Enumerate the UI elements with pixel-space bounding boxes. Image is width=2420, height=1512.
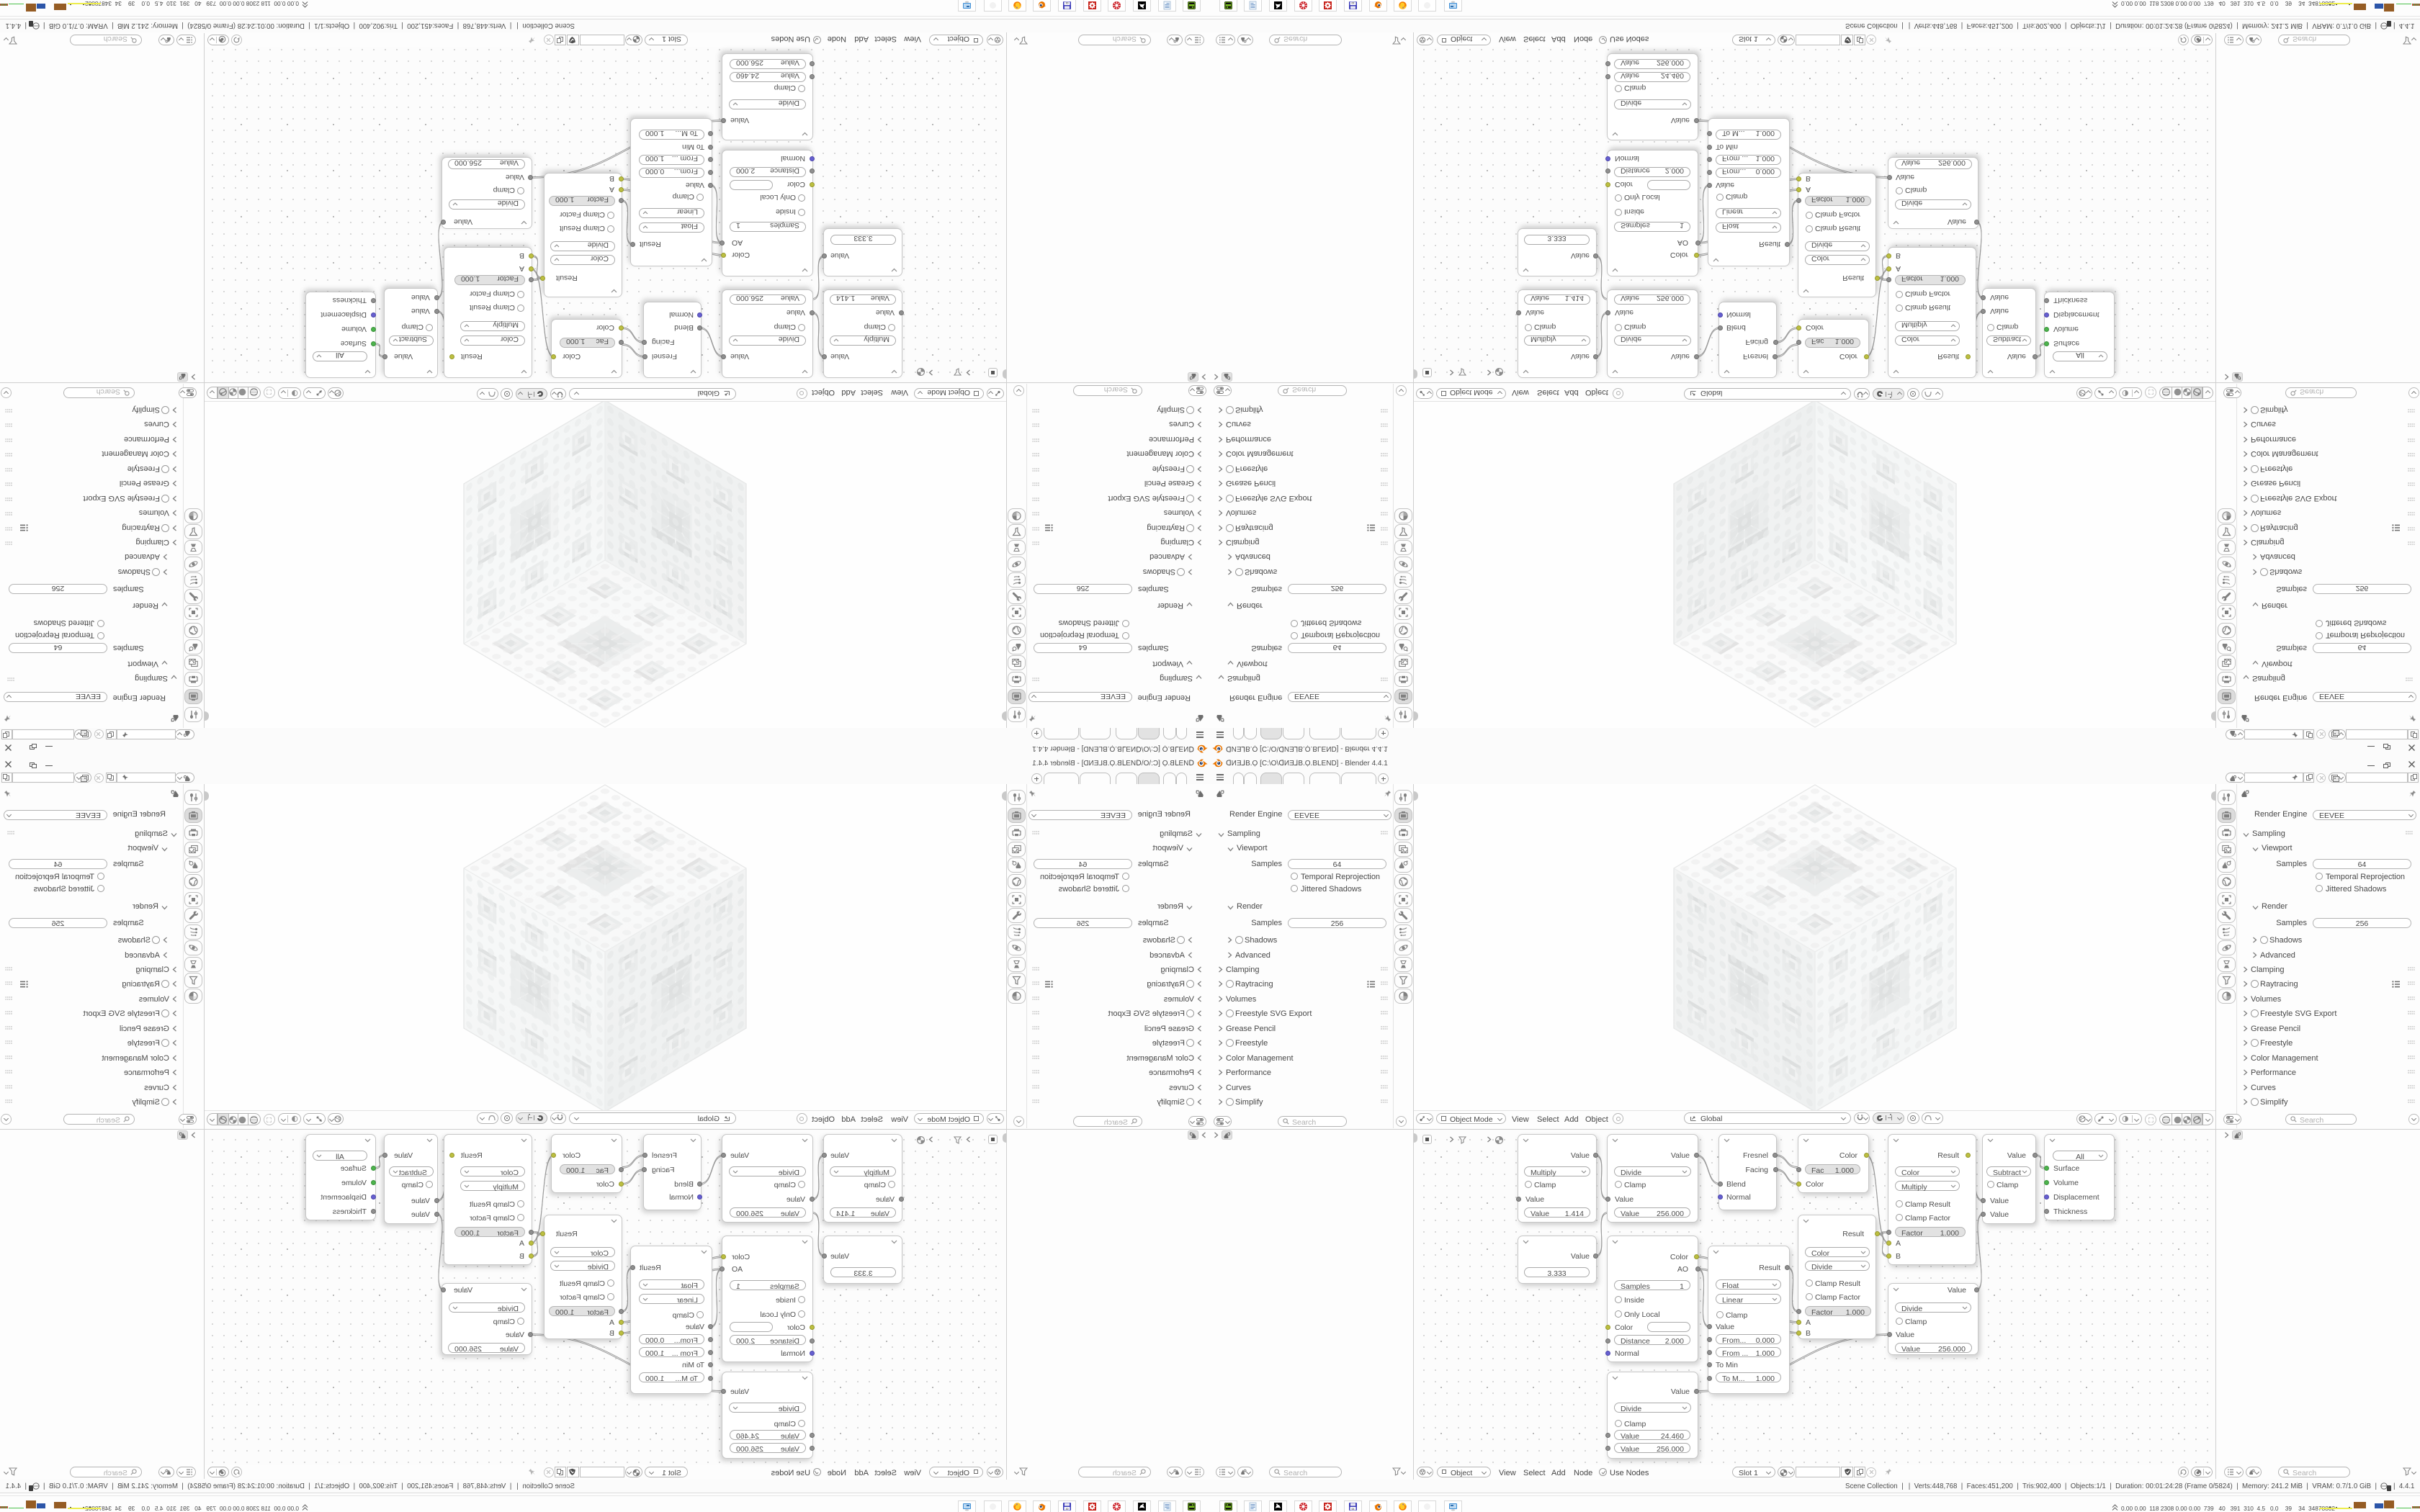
svg-text:64: 64 — [1351, 2, 1354, 5]
svg-text:64: 64 — [1351, 1507, 1354, 1510]
svg-text:64: 64 — [1066, 2, 1069, 5]
svg-text:64: 64 — [1066, 1507, 1069, 1510]
